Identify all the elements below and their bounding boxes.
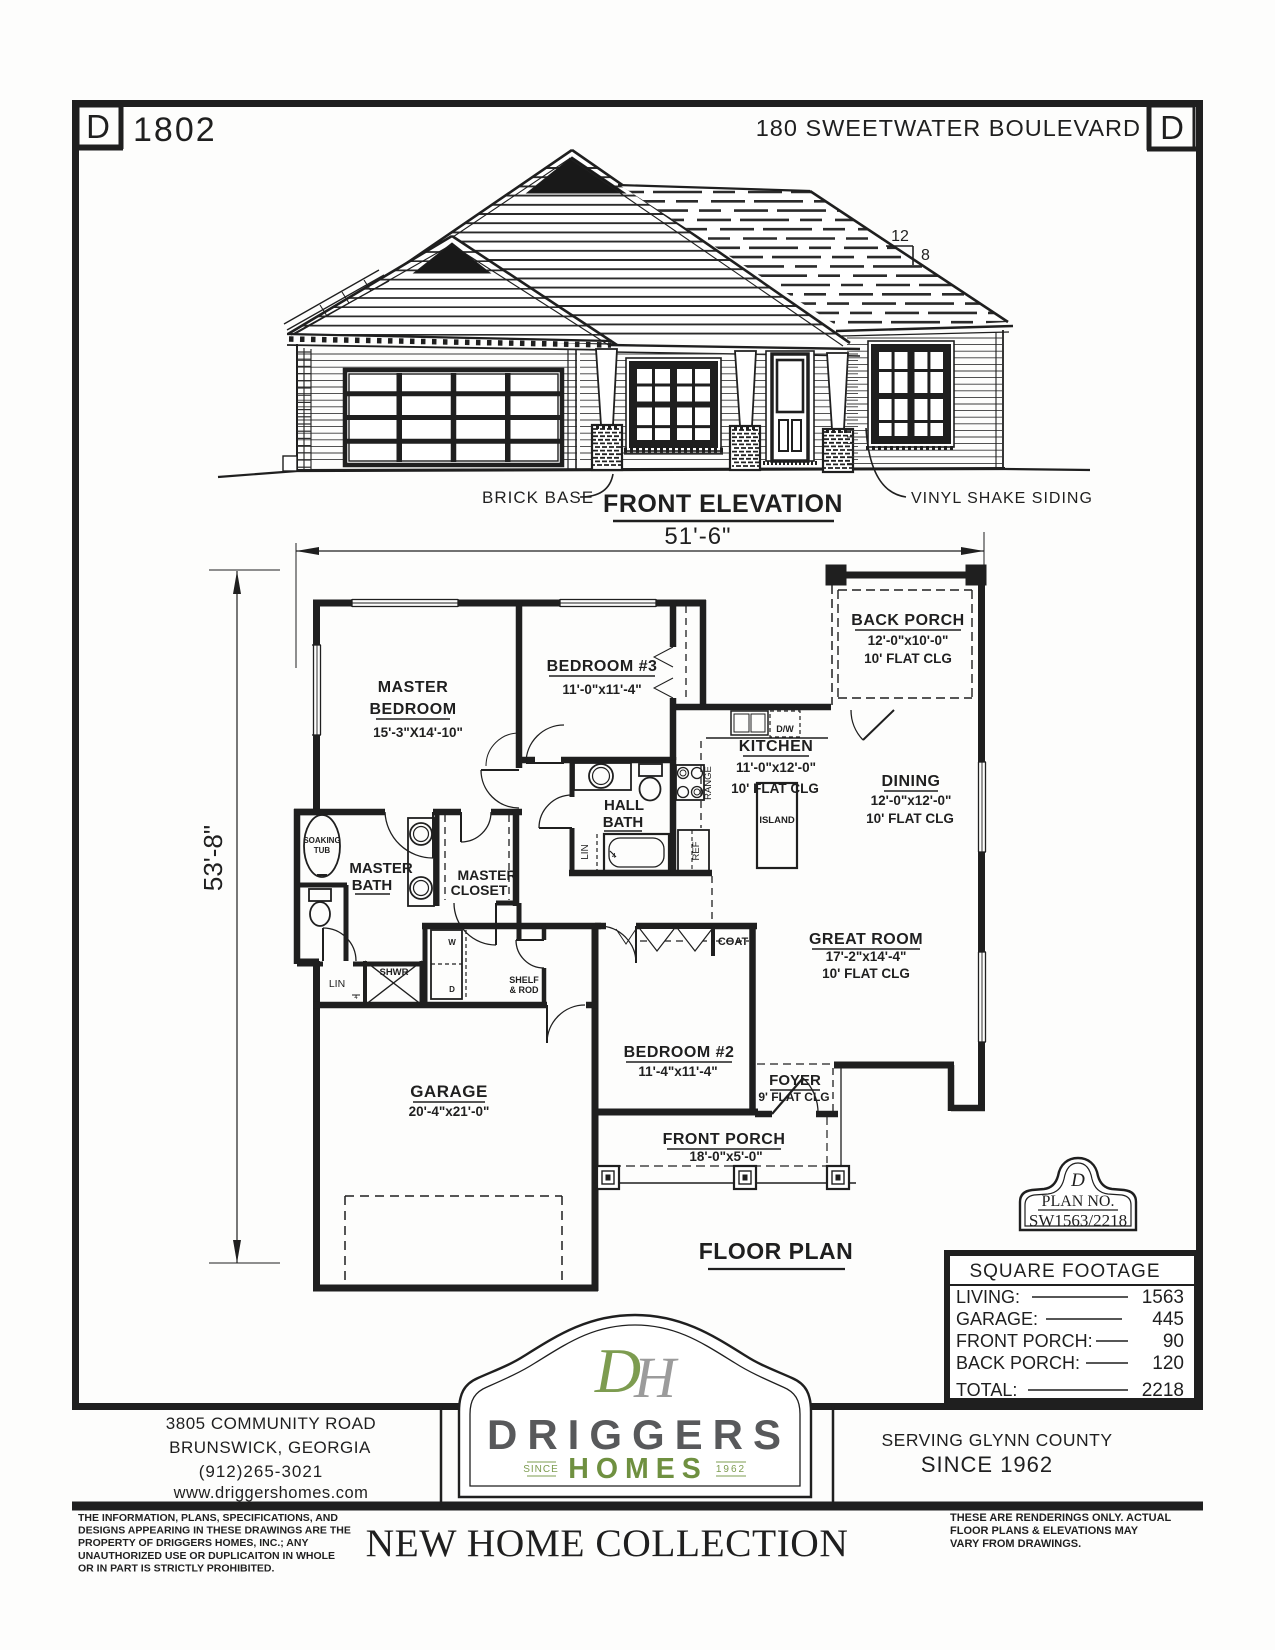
- svg-text:BATH: BATH: [603, 814, 644, 831]
- svg-text:MASTER: MASTER: [349, 860, 413, 877]
- svg-text:REF: REF: [691, 841, 702, 860]
- svg-text:12'-0"x12'-0": 12'-0"x12'-0": [871, 793, 952, 808]
- svg-text:11'-4"x11'-4": 11'-4"x11'-4": [638, 1064, 717, 1079]
- svg-text:10' FLAT CLG: 10' FLAT CLG: [731, 781, 819, 796]
- svg-text:NEW HOME COLLECTION: NEW HOME COLLECTION: [366, 1521, 849, 1565]
- svg-text:120: 120: [1152, 1353, 1184, 1374]
- svg-text:ISLAND: ISLAND: [759, 815, 795, 826]
- svg-text:BEDROOM #2: BEDROOM #2: [624, 1044, 735, 1061]
- svg-text:TUB: TUB: [314, 846, 331, 855]
- svg-text:TOTAL:: TOTAL:: [956, 1380, 1017, 1400]
- svg-text:PROPERTY OF DRIGGERS HOMES,: PROPERTY OF DRIGGERS HOMES, INC.; ANY: [78, 1537, 308, 1549]
- svg-text:LIVING:: LIVING:: [956, 1287, 1020, 1307]
- svg-text:GARAGE:: GARAGE:: [956, 1309, 1038, 1329]
- svg-text:FLOOR PLANS & ELEVATIONS M: FLOOR PLANS & ELEVATIONS MAY: [950, 1525, 1139, 1537]
- svg-text:BEDROOM: BEDROOM: [369, 701, 456, 718]
- svg-text:17'-2"x14'-4": 17'-2"x14'-4": [826, 949, 907, 964]
- svg-text:GREAT ROOM: GREAT ROOM: [809, 931, 923, 948]
- svg-text:SHELF: SHELF: [509, 975, 539, 985]
- svg-text:CLOSET: CLOSET: [451, 882, 508, 898]
- svg-text:D: D: [1160, 109, 1184, 146]
- svg-text:THE INFORMATION, PLANS, SPE: THE INFORMATION, PLANS, SPECIFICATIONS, …: [78, 1512, 338, 1524]
- svg-text:KITCHEN: KITCHEN: [739, 738, 814, 755]
- svg-text:(912)265-3021: (912)265-3021: [199, 1462, 324, 1481]
- svg-text:FRONT ELEVATION: FRONT ELEVATION: [603, 490, 843, 518]
- svg-text:SINCE 1962: SINCE 1962: [921, 1452, 1053, 1477]
- svg-text:SOAKING: SOAKING: [303, 836, 340, 845]
- svg-text:D: D: [449, 985, 455, 994]
- svg-text:11'-0"x12'-0": 11'-0"x12'-0": [736, 760, 816, 775]
- svg-text:DINING: DINING: [882, 773, 941, 790]
- svg-text:1563: 1563: [1142, 1287, 1184, 1308]
- svg-text:D/W: D/W: [776, 724, 794, 734]
- svg-text:VARY FROM DRAWINGS.: VARY FROM DRAWINGS.: [950, 1538, 1081, 1550]
- svg-text:FLOOR PLAN: FLOOR PLAN: [699, 1238, 854, 1264]
- svg-text:D: D: [1070, 1170, 1085, 1191]
- svg-text:LIN: LIN: [580, 844, 591, 860]
- svg-text:11'-0"x11'-4": 11'-0"x11'-4": [562, 682, 641, 697]
- svg-text:180 SWEETWATER BOULEVARD: 180 SWEETWATER BOULEVARD: [756, 115, 1141, 141]
- svg-text:D: D: [86, 108, 110, 145]
- svg-text:MASTER: MASTER: [378, 679, 449, 696]
- svg-text:FRONT PORCH:: FRONT PORCH:: [956, 1331, 1093, 1351]
- svg-text:GARAGE: GARAGE: [410, 1082, 488, 1101]
- svg-text:H: H: [633, 1345, 679, 1410]
- svg-text:BEDROOM #3: BEDROOM #3: [547, 658, 658, 675]
- svg-text:12'-0"x10'-0": 12'-0"x10'-0": [868, 633, 949, 648]
- svg-text:8: 8: [921, 247, 930, 264]
- svg-text:COAT: COAT: [718, 936, 749, 948]
- svg-text:10' FLAT CLG: 10' FLAT CLG: [822, 966, 910, 981]
- svg-text:15'-3"X14'-10": 15'-3"X14'-10": [373, 725, 463, 740]
- svg-text:53'-8": 53'-8": [198, 825, 228, 891]
- svg-text:90: 90: [1163, 1331, 1184, 1352]
- svg-text:THESE ARE RENDERINGS ONLY.: THESE ARE RENDERINGS ONLY. ACTUAL: [950, 1512, 1172, 1524]
- svg-text:UNAUTHORIZED USE OR DUPLICA: UNAUTHORIZED USE OR DUPLICAITON IN WHOLE: [78, 1550, 335, 1562]
- svg-text:BRUNSWICK, GEORGIA: BRUNSWICK, GEORGIA: [169, 1438, 371, 1457]
- svg-text:9' FLAT CLG: 9' FLAT CLG: [758, 1090, 829, 1104]
- svg-text:MASTER: MASTER: [457, 867, 516, 883]
- svg-text:PLAN NO.: PLAN NO.: [1042, 1193, 1115, 1210]
- svg-text:10' FLAT CLG: 10' FLAT CLG: [866, 811, 954, 826]
- svg-text:SQUARE FOOTAGE: SQUARE FOOTAGE: [969, 1261, 1160, 1282]
- svg-text:DESIGNS APPEARING IN THESE: DESIGNS APPEARING IN THESE DRAWINGS ARE …: [78, 1525, 351, 1537]
- svg-text:BACK PORCH:: BACK PORCH:: [956, 1353, 1080, 1373]
- svg-text:SW1563/2218: SW1563/2218: [1029, 1211, 1127, 1230]
- svg-text:1962: 1962: [716, 1464, 746, 1475]
- svg-text:51'-6": 51'-6": [664, 523, 731, 550]
- svg-text:BACK PORCH: BACK PORCH: [851, 612, 964, 629]
- svg-text:BRICK BASE: BRICK BASE: [482, 488, 594, 507]
- svg-text:FOYER: FOYER: [769, 1072, 821, 1089]
- svg-text:OR IN PART IS STRICTLY PR: OR IN PART IS STRICTLY PROHIBITED.: [78, 1562, 274, 1574]
- svg-text:BATH: BATH: [352, 877, 393, 894]
- svg-text:3805 COMMUNITY ROAD: 3805 COMMUNITY ROAD: [166, 1414, 376, 1433]
- svg-text:SERVING GLYNN COUNTY: SERVING GLYNN COUNTY: [881, 1430, 1112, 1450]
- svg-text:12: 12: [891, 228, 909, 245]
- svg-text:445: 445: [1152, 1309, 1184, 1330]
- svg-text:W: W: [448, 938, 456, 947]
- svg-text:VINYL SHAKE SIDING: VINYL SHAKE SIDING: [911, 490, 1093, 507]
- svg-text:SHWR: SHWR: [379, 967, 408, 978]
- svg-text:18'-0"x5'-0": 18'-0"x5'-0": [689, 1149, 762, 1164]
- svg-text:SINCE: SINCE: [523, 1464, 559, 1475]
- svg-text:HALL: HALL: [604, 797, 644, 814]
- svg-text:FRONT PORCH: FRONT PORCH: [663, 1131, 786, 1148]
- svg-text:HOMES: HOMES: [568, 1453, 708, 1485]
- svg-text:2218: 2218: [1142, 1380, 1184, 1401]
- svg-text:10' FLAT CLG: 10' FLAT CLG: [864, 651, 952, 666]
- svg-text:4: 4: [612, 853, 616, 860]
- svg-text:1802: 1802: [133, 111, 217, 149]
- svg-text:20'-4"x21'-0": 20'-4"x21'-0": [409, 1104, 490, 1119]
- svg-text:www.driggershomes.com: www.driggershomes.com: [173, 1484, 369, 1502]
- svg-text:LIN: LIN: [329, 978, 345, 990]
- svg-text:RANGE: RANGE: [703, 766, 714, 800]
- svg-text:DRIGGERS: DRIGGERS: [487, 1411, 791, 1458]
- svg-text:& ROD: & ROD: [510, 985, 540, 995]
